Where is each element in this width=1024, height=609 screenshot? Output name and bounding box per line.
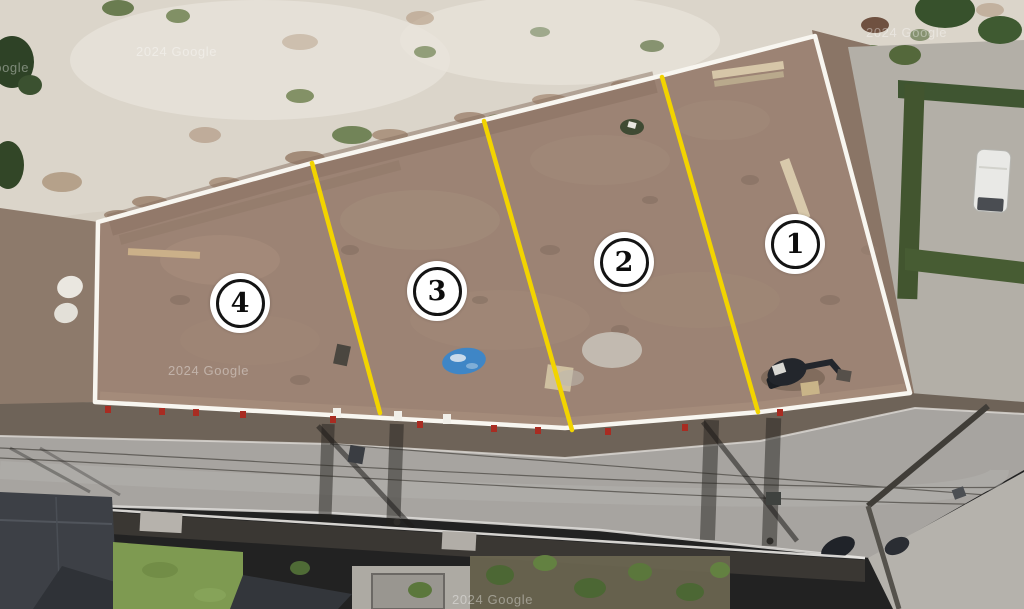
lot-number: 3 — [413, 267, 462, 316]
house-roof — [230, 575, 352, 609]
driveway-gap — [442, 531, 477, 551]
small-roof — [372, 574, 444, 609]
lot-number: 2 — [600, 238, 649, 287]
lot-marker-4[interactable]: 4 — [210, 273, 270, 333]
debris-lot2 — [620, 119, 644, 135]
white-van — [973, 149, 1011, 213]
lot-marker-1[interactable]: 1 — [765, 214, 825, 274]
aerial-lot-map: 1 2 3 4 2024 Google 2024 Google 2024 Goo… — [0, 0, 1024, 609]
lawn — [113, 542, 243, 609]
lot-marker-3[interactable]: 3 — [407, 261, 467, 321]
lot-number: 1 — [771, 220, 820, 269]
dirt-strip-left — [0, 208, 98, 406]
lot-number: 4 — [216, 279, 265, 328]
driveway-gap — [140, 511, 183, 533]
gravel-patch — [582, 332, 642, 368]
satellite-scene — [0, 0, 1024, 609]
lot-marker-2[interactable]: 2 — [594, 232, 654, 292]
